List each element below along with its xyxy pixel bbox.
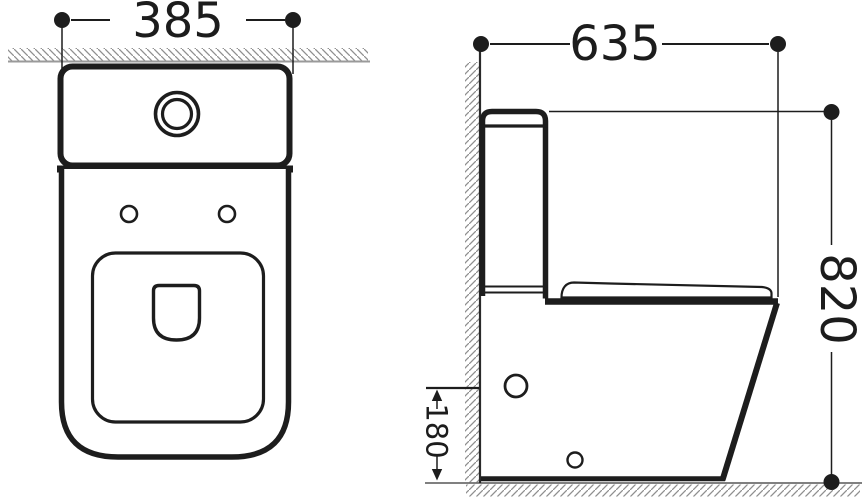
dim-820-value: 820	[813, 253, 861, 345]
dim-385-dot-right	[285, 12, 301, 28]
floor-hatch	[466, 485, 860, 497]
dim-635-value: 635	[569, 20, 661, 68]
fixing-hole-upper	[505, 375, 527, 397]
dim-180-arrow-down	[432, 469, 442, 481]
cistern-side-outline	[483, 112, 546, 299]
technical-drawing-canvas: 385 635 820 180	[0, 0, 866, 501]
side-view	[425, 36, 862, 497]
dim-820-dot-bottom	[824, 474, 840, 490]
dim-635-dot-left	[473, 36, 489, 52]
fixing-hole-lower	[568, 453, 583, 468]
dim-180-value: 180	[422, 403, 451, 458]
seat-lid-side-profile	[562, 283, 772, 298]
front-view	[8, 12, 370, 457]
dim-385-dot-left	[54, 12, 70, 28]
dim-180-arrow-up	[432, 390, 442, 402]
body-front-slant-edge	[723, 303, 778, 480]
seat-hinge-right	[219, 206, 235, 222]
dim-820-dot-top	[824, 104, 840, 120]
seat-hinge-left	[121, 206, 137, 222]
side-wall-hatch	[465, 62, 480, 483]
bowl-opening-outline	[154, 286, 200, 341]
dim-385-value: 385	[132, 0, 224, 45]
dim-635-dot-right	[770, 36, 786, 52]
